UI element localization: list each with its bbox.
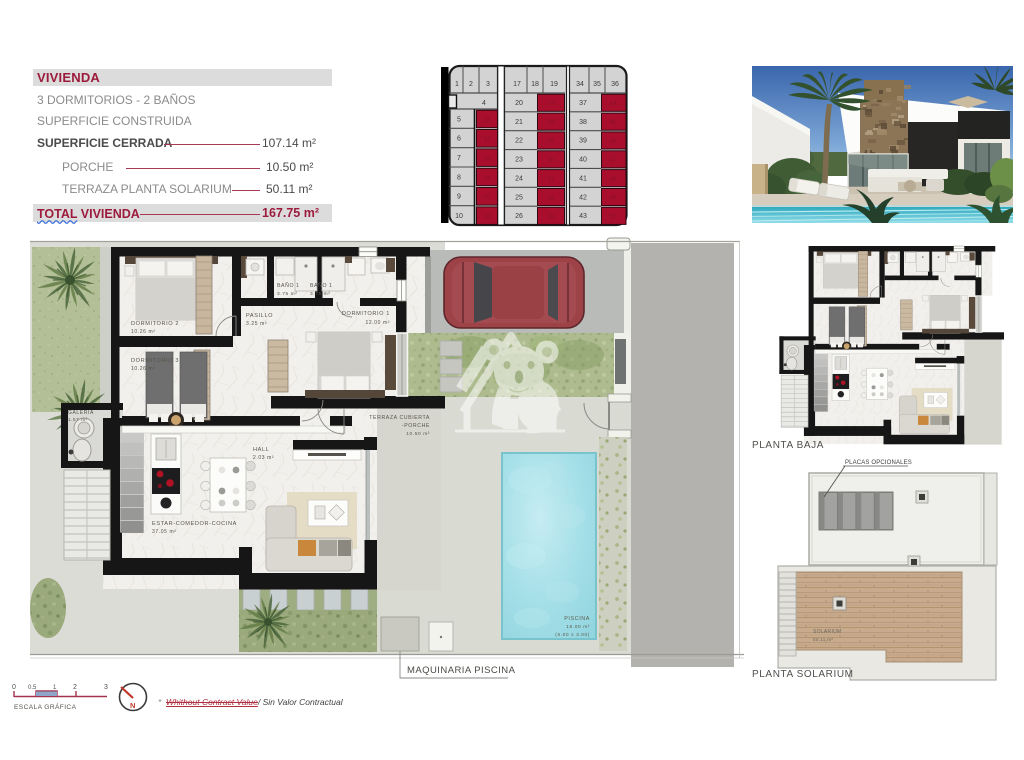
svg-text:2.03 m²: 2.03 m² <box>253 455 274 461</box>
svg-text:PLACAS OPCIONALES: PLACAS OPCIONALES <box>845 460 912 466</box>
svg-text:DORMITORIO 2: DORMITORIO 2 <box>131 321 179 327</box>
svg-text:12.00 m²: 12.00 m² <box>365 320 390 326</box>
svg-text:1.57 m²: 1.57 m² <box>68 417 88 422</box>
svg-text:3.25 m²: 3.25 m² <box>246 321 267 327</box>
svg-text:2: 2 <box>73 684 77 691</box>
svg-text:N: N <box>130 701 135 710</box>
svg-text:-PORCHE: -PORCHE <box>402 423 430 429</box>
svg-text:HALL: HALL <box>253 447 269 453</box>
svg-text:GALERIA: GALERIA <box>68 410 94 416</box>
svg-text:0: 0 <box>12 684 16 691</box>
svg-text:ESTAR-COMEDOR-COCINA: ESTAR-COMEDOR-COCINA <box>152 521 237 527</box>
svg-text:(6.00 x 3.00): (6.00 x 3.00) <box>555 632 590 638</box>
svg-text:50.11 m²: 50.11 m² <box>813 637 833 642</box>
svg-text:10.26 m²: 10.26 m² <box>131 366 156 372</box>
svg-text:0.5: 0.5 <box>28 685 37 691</box>
svg-text:PASILLO: PASILLO <box>246 313 273 319</box>
svg-text:3.75 m²: 3.75 m² <box>310 291 330 297</box>
svg-text:10.26 m²: 10.26 m² <box>131 329 156 335</box>
svg-text:37.05 m²: 37.05 m² <box>152 529 177 535</box>
svg-text:10.50 m²: 10.50 m² <box>406 431 430 437</box>
svg-text:TERRAZA CUBIERTA: TERRAZA CUBIERTA <box>369 415 430 421</box>
svg-text:3.75 m²: 3.75 m² <box>277 291 297 297</box>
svg-text:18.00 m²: 18.00 m² <box>566 624 590 630</box>
svg-text:1: 1 <box>53 685 57 691</box>
svg-text:BAÑO 1: BAÑO 1 <box>310 282 333 289</box>
svg-text:DORMITORIO 1: DORMITORIO 1 <box>342 311 390 317</box>
svg-text:BAÑO 1: BAÑO 1 <box>277 282 300 289</box>
svg-text:3: 3 <box>104 684 108 691</box>
svg-text:SOLARIUM: SOLARIUM <box>813 629 842 635</box>
svg-text:ESCALA GRÁFICA: ESCALA GRÁFICA <box>14 702 77 711</box>
svg-text:PISCINA: PISCINA <box>564 616 590 622</box>
svg-text:DORMITORIO 3: DORMITORIO 3 <box>131 358 179 364</box>
